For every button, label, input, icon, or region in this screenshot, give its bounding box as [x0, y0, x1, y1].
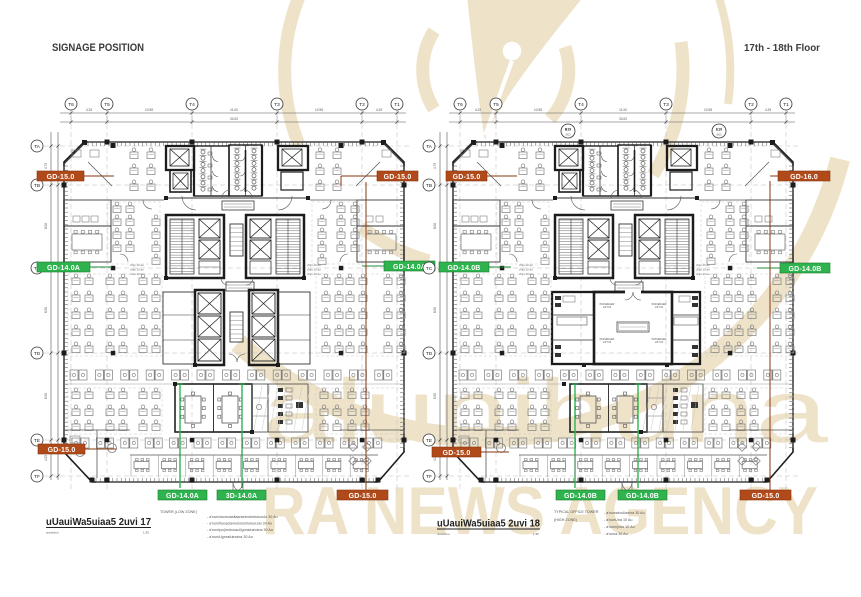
svg-text:GD-14.0A: GD-14.0A — [47, 265, 80, 272]
svg-text:LIFT 00: LIFT 00 — [603, 341, 612, 344]
svg-text:GD-14.0A: GD-14.0A — [166, 493, 199, 500]
svg-text:- a'nuni(uc)inshuiaciJgnnstui: - a'nuni(uc)inshuiaciJgnnstuinoina 30 Au — [207, 528, 273, 532]
svg-text:10.98: 10.98 — [534, 108, 542, 112]
svg-text:- a'nuniUgnnsiuinoina 30 Au: - a'nuniUgnnsiuinoina 30 Au — [207, 535, 253, 539]
svg-text:GD-14.0B: GD-14.0B — [626, 493, 659, 500]
svg-text:TA: TA — [34, 144, 41, 150]
svg-text:d'riju 20 au: d'riju 20 au — [307, 263, 321, 267]
svg-text:- a'nunUna 10 Au: - a'nunUna 10 Au — [604, 518, 632, 522]
svg-text:1:35: 1:35 — [533, 532, 539, 536]
svg-text:GD-16.0: GD-16.0 — [790, 174, 818, 181]
svg-text:4.75: 4.75 — [433, 163, 437, 169]
svg-text:11.00: 11.00 — [619, 108, 627, 112]
svg-text:GD-14.0A: GD-14.0A — [393, 264, 426, 271]
svg-text:d'riju 20 au: d'riju 20 au — [130, 268, 144, 272]
svg-text:T6: T6 — [457, 102, 463, 108]
svg-text:B19: B19 — [565, 128, 571, 132]
svg-text:GD-14.0B: GD-14.0B — [564, 493, 597, 500]
svg-text:LIFT 00: LIFT 00 — [655, 306, 664, 309]
svg-text:GD-15.0: GD-15.0 — [443, 450, 471, 457]
svg-text:8.50: 8.50 — [44, 393, 48, 399]
svg-text:GD-14.0B: GD-14.0B — [447, 265, 480, 272]
svg-text:d'riju 20 au: d'riju 20 au — [519, 268, 533, 272]
svg-text:TE: TE — [34, 438, 40, 444]
svg-text:10.98: 10.98 — [315, 108, 323, 112]
svg-text:TD: TD — [426, 351, 433, 357]
svg-text:GD-15.0: GD-15.0 — [47, 174, 75, 181]
svg-text:4.25: 4.25 — [44, 455, 48, 461]
svg-text:LIFT 00: LIFT 00 — [603, 306, 612, 309]
svg-text:T5: T5 — [493, 102, 499, 108]
svg-text:8.50: 8.50 — [44, 307, 48, 313]
svg-text:TF: TF — [426, 474, 432, 480]
svg-text:- a'nunrituuaciaviursnoshuluu: - a'nunrituuaciaviursnoshuluuculu 30 Au — [207, 522, 272, 526]
svg-text:4.25: 4.25 — [376, 108, 382, 112]
svg-text:8.50: 8.50 — [433, 307, 437, 313]
svg-text:TYPICAL OFFICE TOWER: TYPICAL OFFICE TOWER — [554, 510, 599, 514]
svg-text:alunihuna: alunihuna — [262, 362, 829, 462]
svg-text:TC: TC — [426, 266, 433, 272]
svg-text:- a'nuwainoUseina 30 Au: - a'nuwainoUseina 30 Au — [604, 511, 645, 515]
svg-text:unnsrdou: unnsrdou — [46, 531, 59, 535]
svg-text:GD-15.0: GD-15.0 — [48, 447, 76, 454]
svg-text:GD-14.0B: GD-14.0B — [788, 266, 821, 273]
svg-text:E19: E19 — [716, 128, 722, 132]
svg-text:10.98: 10.98 — [704, 108, 712, 112]
svg-text:TB: TB — [426, 183, 432, 189]
svg-text:TA: TA — [426, 144, 433, 150]
svg-text:T1: T1 — [783, 102, 789, 108]
svg-text:T2: T2 — [359, 102, 365, 108]
svg-text:LIFT 00: LIFT 00 — [655, 341, 664, 344]
svg-text:(HIGH ZONE): (HIGH ZONE) — [554, 518, 577, 522]
svg-text:17th - 18th Floor: 17th - 18th Floor — [744, 42, 820, 54]
svg-text:uUauiWa5uiaa5 2uvi 18: uUauiWa5uiaa5 2uvi 18 — [437, 518, 540, 530]
svg-text:TD: TD — [34, 351, 41, 357]
svg-text:d'riju 20 au: d'riju 20 au — [519, 263, 533, 267]
svg-text:GD-15.0: GD-15.0 — [384, 174, 412, 181]
svg-text:TF: TF — [34, 474, 40, 480]
svg-text:8.00: 8.00 — [44, 223, 48, 229]
svg-text:8.50: 8.50 — [433, 393, 437, 399]
svg-text:33.00: 33.00 — [619, 117, 627, 121]
svg-text:- a'nunnjnuu 10 Au: - a'nunnjnuu 10 Au — [604, 525, 635, 529]
svg-text:1:35: 1:35 — [143, 531, 149, 535]
svg-text:unnsrdou: unnsrdou — [437, 532, 450, 536]
svg-text:RA NEWS AGENCY: RA NEWS AGENCY — [262, 473, 818, 549]
svg-text:- a'nuna 30 Au: - a'nuna 30 Au — [604, 532, 628, 536]
svg-text:4.25: 4.25 — [86, 108, 92, 112]
svg-text:SIGNAGE POSITION: SIGNAGE POSITION — [52, 42, 144, 54]
svg-text:33.00: 33.00 — [230, 117, 238, 121]
svg-text:d'riju 20 au: d'riju 20 au — [696, 263, 710, 267]
svg-text:T2: T2 — [748, 102, 754, 108]
svg-text:3D-14.0A: 3D-14.0A — [226, 493, 258, 500]
svg-text:4.25: 4.25 — [475, 108, 481, 112]
svg-text:TB: TB — [34, 183, 40, 189]
svg-text:GD-15.0: GD-15.0 — [453, 174, 481, 181]
svg-text:T5: T5 — [104, 102, 110, 108]
svg-text:4.25: 4.25 — [765, 108, 771, 112]
svg-text:T3: T3 — [274, 102, 280, 108]
svg-text:GD-15.0: GD-15.0 — [752, 493, 780, 500]
svg-text:d'riju 20 au: d'riju 20 au — [307, 268, 321, 272]
svg-text:T1: T1 — [394, 102, 400, 108]
svg-text:11.00: 11.00 — [230, 108, 238, 112]
svg-text:(HZ): (HZ) — [717, 134, 722, 137]
svg-text:GD-15.0: GD-15.0 — [349, 493, 377, 500]
svg-text:uUauiWa5uiaa5 2uvi 17: uUauiWa5uiaa5 2uvi 17 — [46, 516, 151, 528]
svg-text:T4: T4 — [189, 102, 195, 108]
svg-text:d'riju 20 au: d'riju 20 au — [130, 263, 144, 267]
svg-text:TE: TE — [426, 438, 432, 444]
svg-text:T6: T6 — [68, 102, 74, 108]
svg-text:T3: T3 — [663, 102, 669, 108]
svg-text:10.98: 10.98 — [145, 108, 153, 112]
svg-text:4.75: 4.75 — [44, 163, 48, 169]
svg-text:TOWER (LOW ZONE): TOWER (LOW ZONE) — [160, 510, 197, 514]
svg-text:d'riju 20 au: d'riju 20 au — [696, 268, 710, 272]
svg-text:(HZ): (HZ) — [566, 134, 571, 137]
svg-text:- a'nunvisorsuasliaansninshet: - a'nunvisorsuasliaansninshetuiuoulu 30 … — [207, 515, 278, 519]
svg-text:T4: T4 — [578, 102, 584, 108]
svg-text:8.00: 8.00 — [433, 223, 437, 229]
